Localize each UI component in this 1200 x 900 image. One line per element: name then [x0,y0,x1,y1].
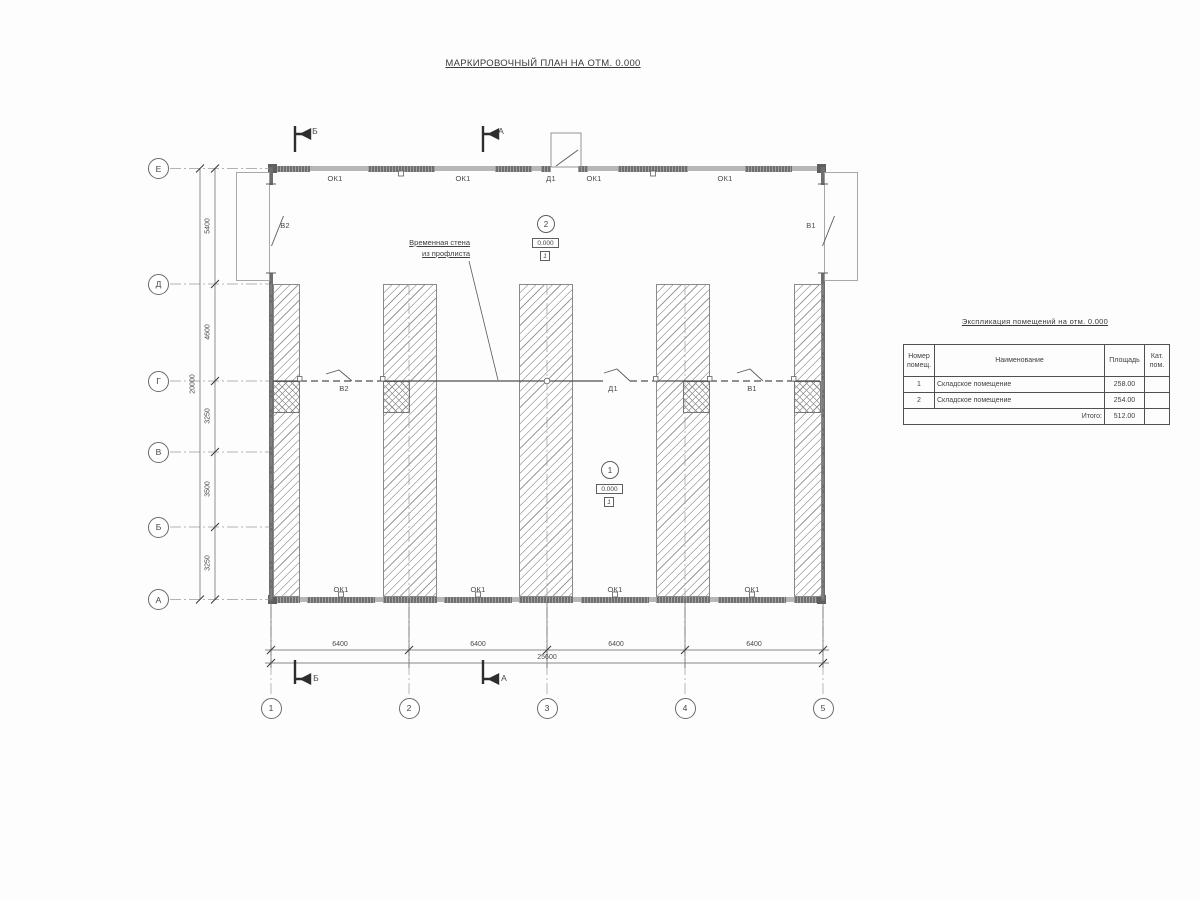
table-row: 2 Складское помещение 254.00 [904,393,1170,409]
header-cat: Кат. пом. [1145,345,1170,377]
grid-bubble-col-5: 5 [813,698,834,719]
grid-bubble-row-a: А [148,589,169,610]
section-b-top-bar [295,126,302,152]
dim-left-2: 4600 [205,324,212,340]
room-2-elevation: 0.000 [532,238,559,248]
header-area: Площадь [1105,345,1145,377]
grid-bubble-col-1: 1 [261,698,282,719]
grid-bubble-row-d: Д [148,274,169,295]
row-2-area: 254.00 [1105,393,1145,409]
room-2-floor-type: 1 [540,251,550,261]
row-1-number: 1 [904,377,935,393]
section-a-bottom-arrow-icon [490,675,498,683]
mark-gate-v2-side: В2 [280,221,290,230]
linework-layer [0,0,1200,900]
mark-window-bottom-1: ОК1 [334,585,349,594]
section-a-bottom-bar [483,660,490,684]
section-label-b-bottom: Б [313,674,319,683]
table-header-row: Номер помещ. Наименование Площадь Кат. п… [904,345,1170,377]
row-2-name: Складское помещение [935,393,1105,409]
mark-window-top-4: ОК1 [718,174,733,183]
room-1-elevation: 0.000 [596,484,623,494]
total-cat [1145,409,1170,425]
section-label-a-top: А [498,127,504,136]
mark-door-top: Д1 [546,174,556,183]
row-1-area: 258.00 [1105,377,1145,393]
grid-bubble-col-4: 4 [675,698,696,719]
dim-bottom-4: 6400 [746,641,762,648]
section-b-top-arrow-icon [302,130,310,138]
room-1-floor-type: 1 [604,497,614,507]
temp-wall-note: Временная стена из профлиста [372,237,470,259]
table-total-row: Итого: 512.00 [904,409,1170,425]
grid-bubble-col-3: 3 [537,698,558,719]
grid-bubble-row-v: В [148,442,169,463]
mark-gate-v2-mid: В2 [339,384,349,393]
explication-table: Номер помещ. Наименование Площадь Кат. п… [903,344,1170,425]
table-row: 1 Складское помещение 258.00 [904,377,1170,393]
dim-bottom-1: 6400 [332,641,348,648]
row-1-name: Складское помещение [935,377,1105,393]
note-leader-line [469,261,498,380]
mark-gate-v1-mid: В1 [747,384,757,393]
grid-axis-lines [170,169,823,697]
grid-bubble-row-e: Е [148,158,169,179]
section-label-a-bottom: А [501,674,507,683]
row-2-cat [1145,393,1170,409]
mark-window-top-2: ОК1 [456,174,471,183]
section-b-bottom-arrow-icon [302,675,310,683]
temp-wall-note-line1: Временная стена [372,237,470,248]
dim-bottom-2: 6400 [470,641,486,648]
header-number: Номер помещ. [904,345,935,377]
dimension-ticks [196,165,827,668]
total-label: Итого: [904,409,1105,425]
mark-window-top-1: ОК1 [328,174,343,183]
dim-left-5: 3250 [205,555,212,571]
mark-window-top-3: ОК1 [587,174,602,183]
mark-window-bottom-4: ОК1 [745,585,760,594]
mark-window-bottom-3: ОК1 [608,585,623,594]
door-leaves [266,150,835,273]
mark-gate-v1-side: В1 [806,221,816,230]
dim-left-1: 5400 [205,218,212,234]
section-a-top-arrow-icon [490,130,498,138]
mark-door-d1-mid: Д1 [608,384,618,393]
room-2-number-bubble: 2 [537,215,555,233]
dim-left-3: 3250 [205,408,212,424]
section-label-b-top: Б [312,127,318,136]
section-b-bottom-bar [295,660,302,684]
grid-bubble-row-b: Б [148,517,169,538]
row-2-number: 2 [904,393,935,409]
row-1-cat [1145,377,1170,393]
dim-left-4: 3500 [205,481,212,497]
header-name: Наименование [935,345,1105,377]
dim-left-total: 20000 [190,374,197,393]
dimension-lines [200,169,829,669]
mark-window-bottom-2: ОК1 [471,585,486,594]
temp-wall-note-line2: из профлиста [372,248,470,259]
total-area: 512.00 [1105,409,1145,425]
section-a-top-bar [483,126,490,152]
drawing-canvas: { "title": "МАРКИРОВОЧНЫЙ ПЛАН НА ОТМ. 0… [0,0,1200,900]
grid-bubble-col-2: 2 [399,698,420,719]
room-1-number-bubble: 1 [601,461,619,479]
section-markers [295,126,498,684]
dim-bottom-3: 6400 [608,641,624,648]
dim-bottom-total: 25600 [537,654,556,661]
grid-bubble-row-g: Г [148,371,169,392]
